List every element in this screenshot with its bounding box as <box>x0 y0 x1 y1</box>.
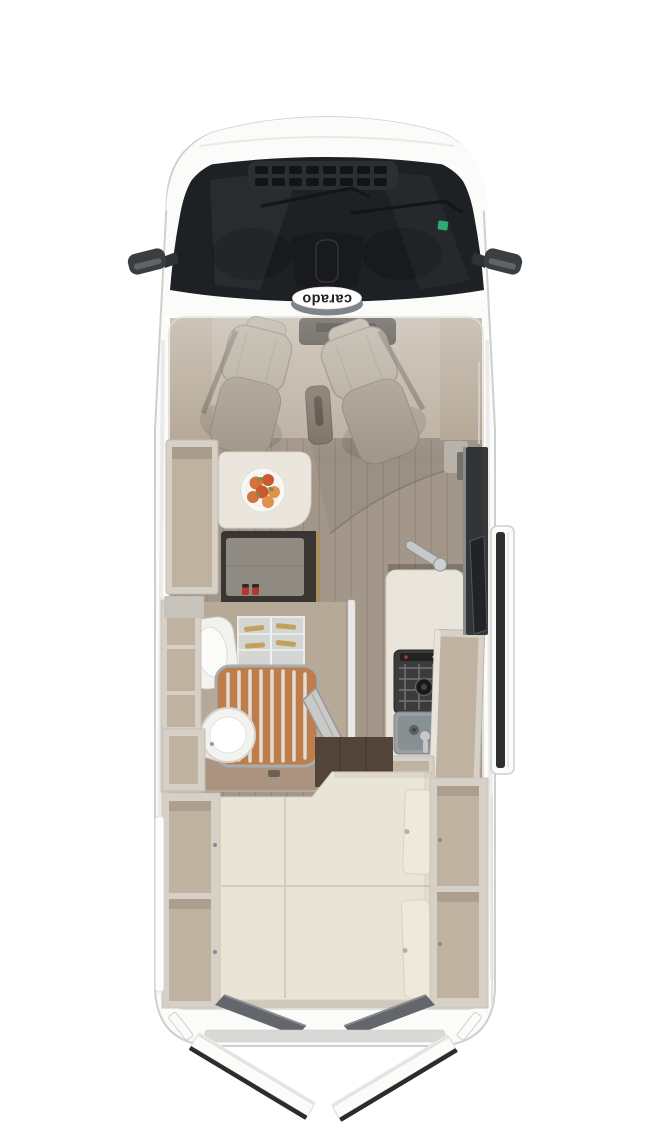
rear-door-right-panel <box>332 1037 455 1118</box>
doorway-edge-light <box>463 447 466 635</box>
kitchen-open-door <box>429 629 484 789</box>
sliding-door-open <box>491 526 514 774</box>
wardrobe-left-box-2 <box>169 899 211 1001</box>
sideboard-inner-shadow <box>172 447 212 459</box>
vignette-sticker <box>437 220 448 230</box>
bed-backrest-cushion-top <box>403 790 434 875</box>
bed-backrest-cushion-bottom <box>401 900 433 999</box>
logo-wordmark: carado <box>302 291 352 307</box>
glass-cabinet <box>238 617 304 667</box>
wardrobe-right-hinge-1 <box>438 838 442 842</box>
shelf-box-2 <box>167 649 195 691</box>
wardrobe-left <box>162 793 220 1008</box>
rear-door-right-open <box>331 1034 458 1122</box>
floor-drain <box>268 770 280 777</box>
toilet <box>201 708 255 762</box>
shelf-top-box <box>164 596 204 618</box>
dinette-table <box>219 452 311 528</box>
brand-logo: carado <box>291 287 363 316</box>
sink-faucet-base <box>420 731 431 742</box>
rear-door-left-edge <box>189 1046 308 1120</box>
sink-faucet-spout <box>423 740 428 753</box>
cab-haze-overlay <box>166 316 486 456</box>
toilet-hinge <box>210 742 214 746</box>
rear-sill <box>205 1030 445 1042</box>
floorplan-canvas: carado <box>0 0 650 1140</box>
wardrobe-right <box>430 778 488 1008</box>
open-door-inner <box>436 636 479 781</box>
wardrobe-right-hinge-2 <box>438 942 442 946</box>
bed-top-shade <box>334 772 432 778</box>
wardrobe-left-hinge-2 <box>213 950 217 954</box>
wardrobe-right-shadow-2 <box>437 892 479 902</box>
rear-door-right-edge <box>339 1048 458 1122</box>
wardrobe-right-box-2 <box>437 892 479 998</box>
sliding-door-trim <box>507 532 509 768</box>
sink-drain-dot <box>412 728 416 732</box>
shelf-lower-interior <box>169 736 198 784</box>
sliding-door-window <box>496 532 505 768</box>
bathroom-shelf-column <box>161 596 205 792</box>
hob-indicator-red <box>404 655 408 659</box>
left-window-strip <box>155 816 164 992</box>
bench-cushion <box>226 538 304 596</box>
dinette-sideboard <box>166 440 218 594</box>
camper-floorplan-illustration: carado <box>0 0 650 1140</box>
wardrobe-left-shadow-2 <box>169 899 211 909</box>
hob-burner-cap <box>421 684 427 690</box>
wardrobe-left-shadow-1 <box>169 801 211 811</box>
toilet-seat <box>210 717 246 753</box>
shelf-box-3 <box>167 695 195 727</box>
wardrobe-right-shadow-1 <box>437 786 479 796</box>
sideboard-interior <box>172 447 212 587</box>
wardrobe-left-hinge-1 <box>213 843 217 847</box>
wardrobe-left-box-1 <box>169 801 211 893</box>
wardrobe-right-box-1 <box>437 786 479 886</box>
